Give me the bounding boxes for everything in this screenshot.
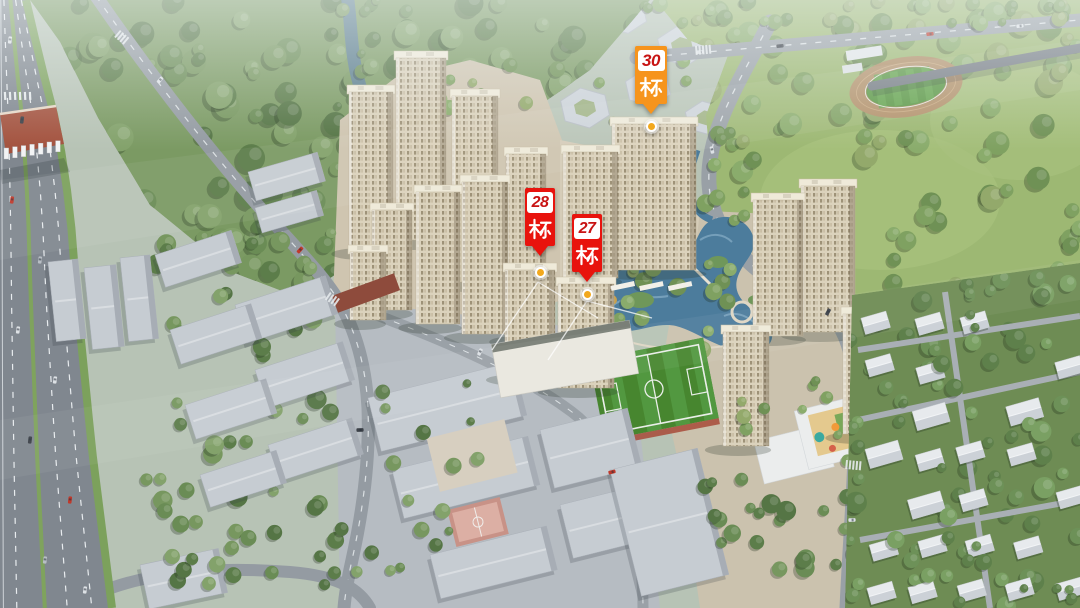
building-number: 30 [638, 50, 665, 71]
dong-character-glyph [528, 216, 552, 242]
building-label-30[interactable]: 30 栋 [635, 46, 667, 134]
building-marker-30[interactable] [644, 119, 659, 134]
aerial-rendering-stage: 30 栋 28 栋 27 [0, 0, 1080, 608]
building-marker-28[interactable] [533, 265, 548, 280]
label-tag: 28 栋 [525, 188, 555, 246]
aerial-scene [0, 0, 1080, 608]
label-pointer [579, 272, 595, 282]
label-tag: 27 栋 [572, 214, 602, 272]
dong-character-glyph [575, 242, 599, 268]
building-label-27[interactable]: 27 栋 [572, 214, 602, 302]
building-number: 27 [574, 218, 600, 239]
label-pointer [643, 104, 659, 114]
building-label-28[interactable]: 28 栋 [525, 188, 555, 280]
label-tag: 30 栋 [635, 46, 667, 104]
dong-character-glyph [639, 74, 663, 100]
building-number: 28 [527, 192, 553, 213]
label-pointer [532, 246, 548, 256]
building-marker-27[interactable] [580, 287, 595, 302]
